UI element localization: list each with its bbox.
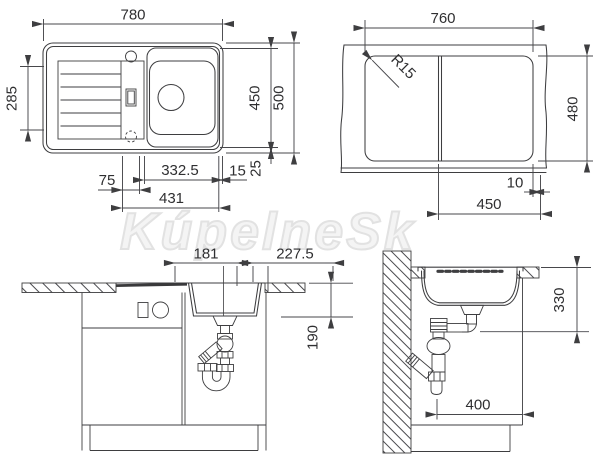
dim-rim-gap: 25 (248, 160, 265, 177)
dim-cut-depth: 480 (565, 96, 582, 121)
sink-dimension-drawing: 780 285 450 500 332.5 15 25 75 431 (0, 0, 600, 466)
cabinet-symbol-square (138, 303, 148, 318)
plan-tap-holes (126, 51, 137, 142)
dim-bowl-depth: 190 (305, 325, 322, 350)
side-wall (383, 251, 411, 453)
dim-bowl-outer-width: 431 (159, 190, 184, 207)
plan-drainboard (58, 61, 144, 139)
worktop-outline (341, 45, 547, 173)
dim-overall-width: 780 (120, 7, 145, 24)
front-view: 181 227.5 190 (22, 246, 353, 451)
dim-drain-height: 330 (551, 287, 568, 312)
side-view: 330 400 (383, 251, 591, 453)
front-worktop (22, 283, 305, 293)
plan-sink-outline (43, 43, 223, 153)
drainboard-edge (116, 284, 187, 285)
dim-right-span: 227.5 (276, 246, 314, 263)
dim-tap-offset: 75 (99, 172, 116, 189)
dim-edge-offset: 10 (507, 175, 524, 192)
dim-edge-gap: 15 (229, 163, 246, 180)
side-dimension-labels: 330 400 (465, 287, 568, 413)
front-trap-assembly (198, 266, 237, 391)
front-bowl (189, 283, 262, 316)
cutout-view: 760 R15 480 10 450 (341, 10, 593, 220)
tap-hole (126, 51, 137, 62)
side-trap-assembly (406, 305, 484, 394)
dim-overall-depth: 500 (271, 85, 288, 110)
plan-view: 780 285 450 500 332.5 15 25 75 431 (4, 7, 301, 213)
dim-bowl-width: 332.5 (161, 162, 199, 179)
cutout-dimension-labels: 760 R15 480 10 450 (387, 10, 581, 213)
trap-ball-joint (217, 336, 233, 352)
dim-inner-depth: 450 (247, 85, 264, 110)
dim-drainer-depth: 285 (4, 86, 21, 111)
dim-right-span: 450 (476, 196, 501, 213)
side-sink-section (418, 267, 523, 305)
cutout-opening (365, 56, 533, 161)
dim-cut-width: 760 (430, 10, 455, 27)
plan-bowl (147, 48, 218, 147)
dim-cabinet-depth: 400 (465, 397, 490, 414)
dim-left-span: 181 (193, 246, 218, 263)
front-dimension-labels: 181 227.5 190 (193, 246, 321, 351)
trap-ball-joint-side (427, 338, 450, 355)
drain-hole (158, 85, 184, 111)
cabinet-symbol-circle (153, 302, 169, 318)
technical-drawing-page: KúpelneSk (0, 0, 600, 466)
trap-branch-pipe (199, 342, 222, 364)
side-cabinet (411, 278, 523, 452)
tap-hole-optional (126, 131, 137, 142)
